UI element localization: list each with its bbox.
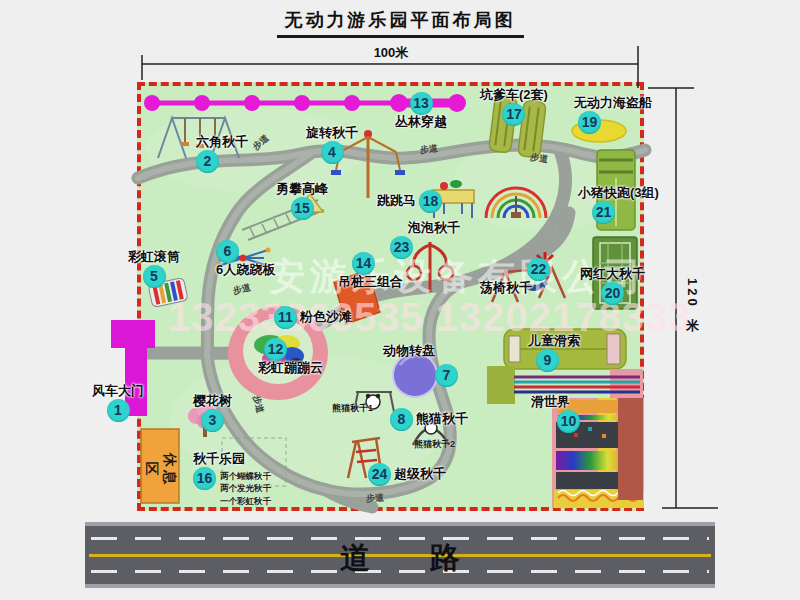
- attraction-number-badge: 5: [143, 265, 166, 288]
- marker-hexagon-swing: 六角秋千 2: [196, 135, 248, 173]
- attraction-number-badge: 8: [390, 408, 413, 431]
- attraction-label: 风车大门: [92, 384, 144, 399]
- marker-six-person-seesaw: 6 6人跷跷板: [216, 240, 275, 278]
- swing-park-note: 两个蝴蝶秋千: [220, 470, 271, 482]
- attraction-number-badge: 11: [274, 306, 297, 329]
- attraction-label: 吊桩三组合: [338, 275, 403, 290]
- attraction-label: 荡椅秋千: [480, 281, 532, 296]
- attraction-number-badge: 12: [264, 338, 287, 361]
- marker-bubble-swing: 泡泡秋千 23: [408, 221, 460, 259]
- panda-swing-2-label: 熊猫秋千2: [414, 438, 455, 451]
- attraction-number-badge: 17: [502, 103, 525, 126]
- marker-swing-park: 秋千乐园 16 两个蝴蝶秋千 两个发光秋千 一个彩虹秋千: [193, 452, 271, 507]
- attraction-number-badge: 6: [216, 240, 239, 263]
- attraction-number-badge: 24: [368, 463, 391, 486]
- marker-kids-zipline: 儿童滑索 9: [528, 334, 580, 372]
- swing-park-notes: 两个蝴蝶秋千 两个发光秋千 一个彩虹秋千: [220, 470, 271, 507]
- panda-swing-1-label: 熊猫秋千1: [332, 402, 373, 415]
- marker-swing-chair: 22 荡椅秋千: [480, 258, 532, 296]
- marker-animal-turntable: 动物转盘 7: [383, 344, 458, 387]
- attraction-label: 网红大秋千: [580, 267, 645, 282]
- attraction-number-badge: 20: [601, 282, 624, 305]
- marker-climbing-peak: 勇攀高峰 15: [276, 182, 328, 220]
- marker-super-swing: 24 超级秋千: [368, 463, 446, 486]
- marker-jungle-crossing: 13 丛林穿越: [395, 92, 447, 130]
- marker-slide-world: 滑世界 10: [531, 395, 580, 433]
- attraction-number-badge: 21: [592, 201, 615, 224]
- attraction-label: 彩虹滚筒: [128, 250, 180, 265]
- attraction-label: 六角秋千: [196, 135, 248, 150]
- attraction-label: 小猪快跑(3组): [578, 186, 659, 201]
- marker-jumping-horse: 跳跳马 18: [377, 190, 442, 213]
- attraction-label: 樱花树: [193, 394, 232, 409]
- attraction-label: 秋千乐园: [193, 452, 245, 467]
- height-dimension-label: 120米: [683, 278, 701, 312]
- marker-piggy-run: 小猪快跑(3组) 21: [578, 186, 659, 224]
- swing-park-note: 两个发光秋千: [220, 482, 271, 494]
- attraction-number-badge: 22: [527, 258, 550, 281]
- attraction-number-badge: 7: [435, 364, 458, 387]
- park-layout-plan: 无动力游乐园平面布局图 100米 120米: [0, 0, 800, 600]
- marker-pink-beach: 11 粉色沙滩: [274, 306, 352, 329]
- attraction-label: 粉色沙滩: [300, 310, 352, 325]
- attraction-label: 超级秋千: [394, 467, 446, 482]
- attraction-number-badge: 3: [201, 409, 224, 432]
- attraction-number-badge: 1: [107, 399, 130, 422]
- attraction-label: 熊猫秋千: [416, 412, 468, 427]
- attraction-number-badge: 23: [390, 236, 413, 259]
- attraction-label: 旋转秋千: [306, 126, 358, 141]
- walkway-label: 步道: [366, 491, 385, 505]
- marker-hanging-pile-combo: 14 吊桩三组合: [338, 252, 403, 290]
- attraction-number-badge: 19: [578, 111, 601, 134]
- attraction-label: 跳跳马: [377, 194, 416, 209]
- marker-rotating-swing: 旋转秋千 4: [306, 126, 358, 164]
- attraction-number-badge: 16: [193, 467, 216, 490]
- rest-area-label: 休息区: [142, 448, 178, 492]
- walkway-label: 步道: [529, 151, 549, 166]
- marker-windmill-gate: 风车大门 1: [92, 384, 144, 422]
- walkway-label: 步道: [419, 142, 438, 157]
- marker-pit-car: 坑爹车(2套) 17: [480, 88, 548, 126]
- attraction-number-badge: 10: [557, 410, 580, 433]
- width-dimension-label: 100米: [137, 44, 645, 62]
- road-label: 道 路: [85, 538, 715, 579]
- marker-cherry-tree: 樱花树 3: [193, 394, 232, 432]
- marker-rainbow-roller: 彩虹滚筒 5: [128, 250, 180, 288]
- attraction-label: 勇攀高峰: [276, 182, 328, 197]
- marker-rainbow-cloud: 12 彩虹蹦蹦云: [258, 338, 323, 376]
- attraction-label: 丛林穿越: [395, 115, 447, 130]
- attraction-number-badge: 18: [419, 190, 442, 213]
- attraction-label: 泡泡秋千: [408, 221, 460, 236]
- attraction-label: 坑爹车(2套): [480, 88, 548, 103]
- marker-panda-swing: 8 熊猫秋千: [390, 408, 468, 431]
- attraction-number-badge: 15: [291, 197, 314, 220]
- page-title-text: 无动力游乐园平面布局图: [277, 8, 524, 38]
- marker-big-swing: 网红大秋千 20: [580, 267, 645, 305]
- attraction-label: 儿童滑索: [528, 334, 580, 349]
- page-title: 无动力游乐园平面布局图: [0, 8, 800, 38]
- attraction-label: 无动力海盗船: [574, 96, 652, 111]
- attraction-number-badge: 4: [321, 141, 344, 164]
- road: 道 路: [85, 522, 715, 588]
- attraction-label: 6人跷跷板: [216, 263, 275, 278]
- attraction-label: 滑世界: [531, 395, 570, 410]
- attraction-number-badge: 14: [352, 252, 375, 275]
- attraction-label: 动物转盘: [383, 344, 435, 359]
- marker-pirate-ship: 无动力海盗船 19: [574, 96, 652, 134]
- swing-park-note: 一个彩虹秋千: [220, 495, 271, 507]
- attraction-number-badge: 13: [410, 92, 433, 115]
- attraction-label: 彩虹蹦蹦云: [258, 361, 323, 376]
- attraction-number-badge: 2: [196, 150, 219, 173]
- attraction-number-badge: 9: [536, 349, 559, 372]
